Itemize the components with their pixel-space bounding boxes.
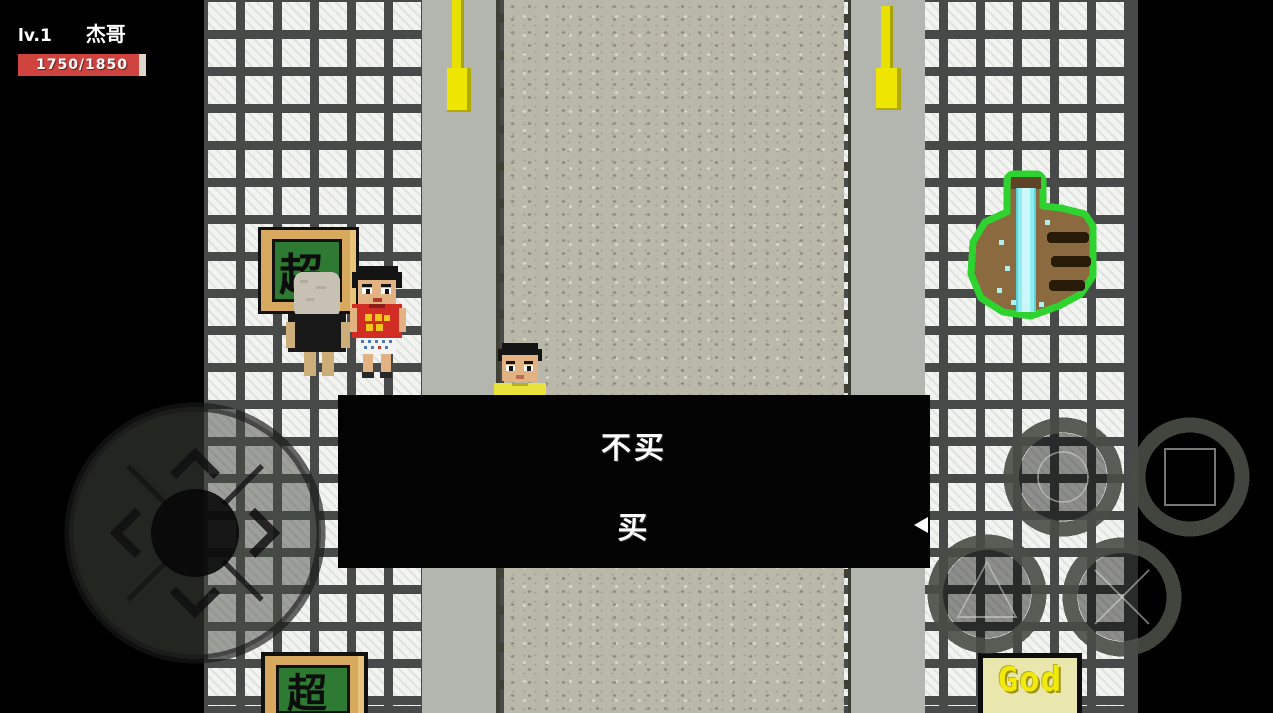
- action-button-cross[interactable]: [1062, 537, 1182, 657]
- virtual-dpad[interactable]: [60, 398, 330, 668]
- street-lamp-right-pole: [881, 6, 893, 70]
- red-shirt-npc-sprite: [350, 266, 406, 380]
- dialog-option-buy[interactable]: 买: [338, 503, 930, 547]
- road: [504, 0, 844, 713]
- street-lamp-left-pole: [452, 0, 464, 70]
- hp-bar: 1750/1850: [18, 54, 146, 76]
- player-level: lv.1: [18, 26, 52, 46]
- selection-cursor-left-triangle-icon: [914, 517, 928, 533]
- dialog-option-no-buy[interactable]: 不买: [338, 423, 930, 467]
- hp-value: 1750/1850: [18, 54, 146, 76]
- street-lamp-left-head: [447, 68, 471, 112]
- chalkboard-bottom-text: 超: [276, 665, 350, 713]
- action-button-triangle[interactable]: [927, 534, 1047, 654]
- player-hud: lv.1 杰哥 1750/1850: [18, 18, 146, 76]
- thumbs-up-statue-sprite: [959, 170, 1105, 322]
- god-sign-text: God: [998, 660, 1062, 700]
- street-lamp-right-head: [876, 68, 901, 110]
- player-name: 杰哥: [86, 18, 126, 47]
- shopkeeper-npc-sprite: [286, 270, 350, 378]
- player-character-sprite: [494, 343, 546, 397]
- action-button-square[interactable]: [1130, 417, 1250, 537]
- buy-dialog: 不买 买: [338, 395, 930, 568]
- hud-name-row: lv.1 杰哥: [18, 18, 146, 47]
- action-button-circle[interactable]: [1003, 417, 1123, 537]
- game-screen: 超: [0, 0, 1273, 713]
- god-sign: God: [978, 653, 1082, 713]
